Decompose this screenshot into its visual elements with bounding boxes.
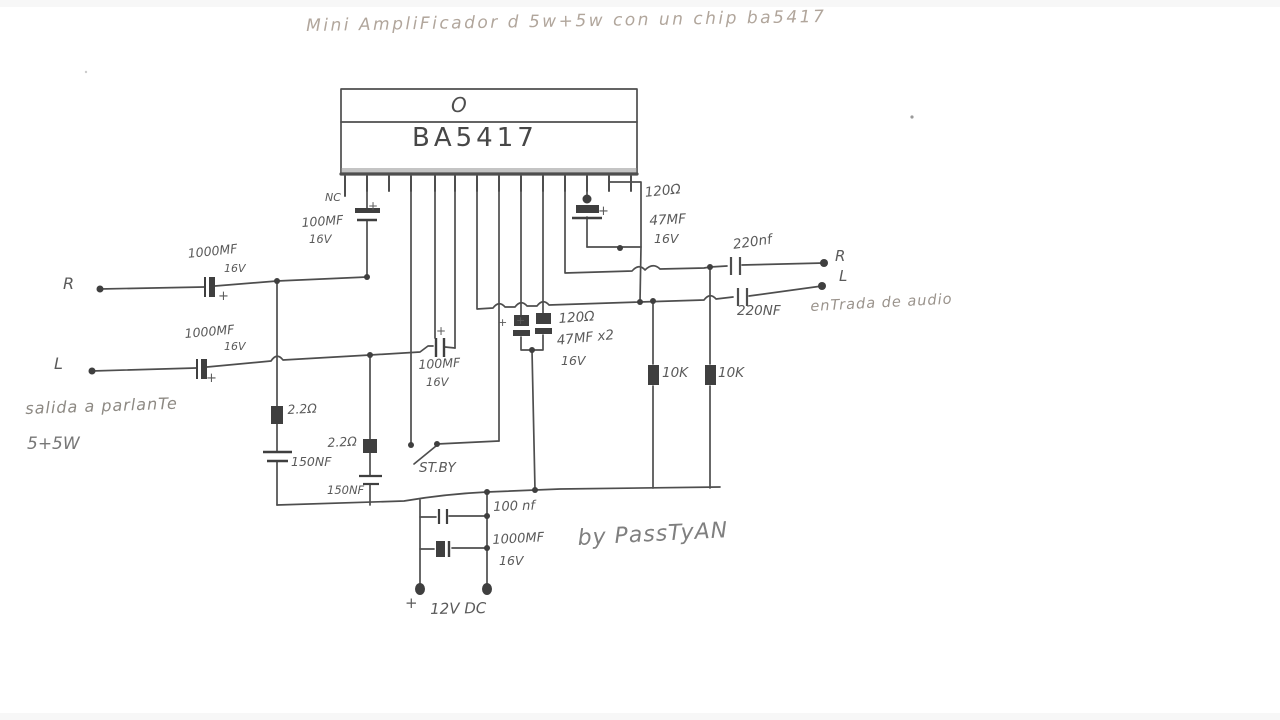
output-l-label: L xyxy=(54,354,63,373)
resistor-mid-value: 120Ω xyxy=(558,308,595,326)
cap-top-right-value: 47MF xyxy=(649,211,686,229)
polarity-boot-2: + xyxy=(516,314,525,327)
cap-zobel-a-value: 150NF xyxy=(291,454,331,469)
nc-label: NC xyxy=(325,191,341,204)
cap-output-l-voltage: 16V xyxy=(224,340,246,353)
schematic-drawing xyxy=(0,0,1280,720)
polarity-top-right: + xyxy=(598,204,609,219)
cap-symbol-zobel-a xyxy=(263,452,292,461)
output-r-label: R xyxy=(63,274,74,293)
cap-input-l-value: 220NF xyxy=(737,303,781,319)
polarity-supply: + xyxy=(405,594,418,612)
paper-specks xyxy=(85,71,914,119)
cap-symbol-supply-large xyxy=(436,541,449,557)
resistor-zobel-b-value: 2.2Ω xyxy=(327,433,357,450)
polarity-output-r: + xyxy=(218,289,229,304)
cap-symbol-mid xyxy=(436,338,444,357)
ic-pin1-mark: O xyxy=(451,93,467,117)
standby-label: ST.BY xyxy=(419,460,456,476)
resistor-symbol-bias-2 xyxy=(705,365,716,385)
cap-top-left-value: 100MF xyxy=(301,212,344,230)
cap-top-right-voltage: 16V xyxy=(654,231,678,246)
polarity-output-l: + xyxy=(206,371,217,386)
resistor-bias-2-value: 10K xyxy=(718,365,744,381)
video-frame: Mini AmpliFicador d 5w+5w con un chip ba… xyxy=(0,0,1280,720)
resistor-symbol-zobel-b xyxy=(363,439,377,453)
input-l-label: L xyxy=(839,267,847,285)
ic-pins xyxy=(345,176,631,196)
resistor-symbol-zobel-a xyxy=(271,406,283,424)
cap-supply-large-voltage: 16V xyxy=(499,553,523,568)
cap-boot-voltage: 16V xyxy=(561,353,585,368)
cap-mid-voltage: 16V xyxy=(426,375,449,389)
output-rating: 5+5W xyxy=(27,434,80,454)
ic-part-number: BA5417 xyxy=(412,123,538,153)
resistor-zobel-a-value: 2.2Ω xyxy=(287,400,317,417)
supply-label: 12V DC xyxy=(430,599,486,618)
resistor-symbol-bias-1 xyxy=(648,365,659,385)
cap-zobel-b-value: 150NF xyxy=(327,483,364,497)
cap-output-r-voltage: 16V xyxy=(224,262,246,275)
supply-minus-terminal xyxy=(482,583,492,595)
input-r-label: R xyxy=(835,247,845,265)
cap-symbol-supply-small xyxy=(439,509,447,524)
cap-supply-large-value: 1000MF xyxy=(492,530,544,548)
resistor-bias-1-value: 10K xyxy=(662,365,688,381)
cap-top-left-voltage: 16V xyxy=(309,232,332,246)
polarity-boot-1: + xyxy=(498,316,507,329)
polarity-mid: + xyxy=(436,324,446,338)
cap-mid-value: 100MF xyxy=(418,355,461,372)
input-l-terminal xyxy=(818,282,826,290)
cap-supply-small-value: 100 nf xyxy=(493,499,535,515)
cap-symbol-input-r xyxy=(731,257,740,275)
input-r-terminal xyxy=(820,259,828,267)
polarity-top-left: + xyxy=(368,199,378,213)
cap-symbol-output-r xyxy=(205,277,215,297)
